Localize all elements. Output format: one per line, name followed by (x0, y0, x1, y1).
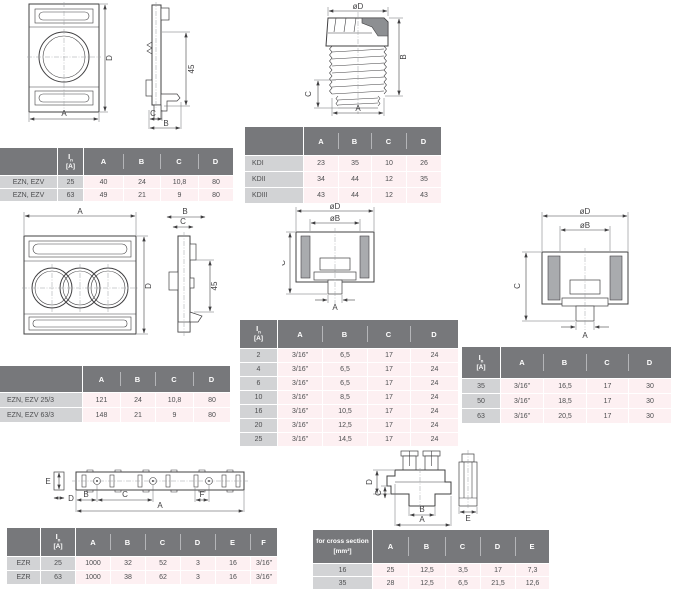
value-cell: 3,5 (445, 563, 480, 576)
value-cell: 6,5 (322, 376, 367, 390)
value-cell: 148 (82, 407, 120, 422)
value-cell: 9 (155, 407, 193, 422)
dim-label-a: A (419, 515, 425, 524)
dim-label-c: C (122, 490, 128, 499)
row-label: KDIII (245, 187, 303, 203)
column-header-b: B (120, 366, 155, 392)
value-cell: 44 (338, 171, 371, 187)
value-cell: 44 (338, 187, 371, 203)
value-cell: 3/16” (250, 570, 277, 584)
column-header-d: D (628, 347, 671, 378)
value-cell: 35 (406, 171, 441, 187)
catalog-page: A D 45 C B (0, 0, 674, 600)
column-header-b: B (338, 127, 371, 155)
value-cell: 12,5 (322, 418, 367, 432)
row-label: 16 (313, 563, 372, 576)
value-cell: 17 (367, 376, 410, 390)
value-cell: 17 (586, 378, 628, 393)
column-header-c: C (371, 127, 406, 155)
value-cell: 3 (180, 570, 215, 584)
row-label: KDII (245, 171, 303, 187)
cup-body (542, 248, 628, 330)
dim-label-od: øD (580, 207, 591, 216)
insert-small-drawing: øD øB C A (282, 202, 388, 314)
column-header-f: F (250, 528, 277, 556)
value-cell: 3/16” (500, 378, 543, 393)
value-cell: 32 (110, 556, 145, 570)
row-label: EZR (7, 556, 40, 570)
dim-label-b: B (419, 505, 424, 514)
in-value: 25 (57, 175, 83, 188)
value-cell: 12,5 (408, 576, 445, 589)
column-header-b: B (408, 530, 445, 563)
value-cell: 3/16” (277, 390, 322, 404)
column-header-a: A (277, 320, 322, 348)
front-view (27, 2, 101, 114)
value-cell: 24 (410, 432, 458, 446)
value-cell: 3/16” (500, 408, 543, 423)
rail-front-view (72, 470, 248, 492)
insert-large-drawing: øD øB C A (498, 196, 654, 342)
value-cell: 7,3 (515, 563, 549, 576)
value-cell: 80 (193, 392, 230, 407)
column-header-d: D (406, 127, 441, 155)
in-value: 10 (240, 390, 277, 404)
value-cell: 1000 (75, 556, 110, 570)
column-header-b: B (322, 320, 367, 348)
value-cell: 17 (367, 404, 410, 418)
column-header-c: C (367, 320, 410, 348)
dim-label-d: D (365, 479, 374, 485)
column-header-in: In [A] (240, 320, 277, 348)
dim-label-e: E (465, 514, 470, 523)
dim-label-c: C (374, 490, 383, 496)
rail-end-view: E D (45, 472, 74, 503)
value-cell: 80 (198, 175, 233, 188)
value-cell: 10 (371, 155, 406, 171)
value-cell: 24 (410, 362, 458, 376)
in-value: 2 (240, 348, 277, 362)
value-cell: 3/16” (500, 393, 543, 408)
dim-label-c: C (304, 91, 313, 97)
value-cell: 3/16” (277, 404, 322, 418)
in-unit: [A] (476, 364, 485, 371)
value-cell: 30 (628, 393, 671, 408)
value-cell: 24 (410, 348, 458, 362)
value-cell: 80 (198, 188, 233, 201)
row-label: EZN, EZV 63/3 (0, 407, 82, 422)
ezn3-side-view-drawing: B C 45 (156, 208, 220, 340)
dim-label-a: A (582, 331, 588, 340)
value-cell: 30 (628, 378, 671, 393)
side-view (146, 2, 180, 119)
cup-body (296, 228, 374, 304)
dim-label-d: D (68, 494, 74, 503)
ezn-side-view-drawing: 45 C B (136, 2, 208, 130)
dim-label-a: A (332, 303, 338, 312)
value-cell: 17 (586, 393, 628, 408)
value-cell: 49 (83, 188, 123, 201)
value-cell: 43 (406, 187, 441, 203)
value-cell: 24 (410, 404, 458, 418)
dim-label-od: øD (330, 202, 341, 211)
value-cell: 8,5 (322, 390, 367, 404)
dim-label-ob: øB (580, 221, 590, 230)
value-cell: 3/16” (277, 376, 322, 390)
dim-label-b: B (83, 490, 88, 499)
column-header-a: A (83, 148, 123, 175)
column-header-d: D (410, 320, 458, 348)
column-header-d: D (480, 530, 515, 563)
value-cell: 16,5 (543, 378, 586, 393)
dim-label-a: A (157, 501, 163, 510)
dimensions: A D (29, 4, 114, 122)
ezr-rail-drawing: E D B C (28, 456, 264, 518)
header-blank (0, 148, 57, 175)
dim-label-a: A (77, 208, 83, 216)
value-cell: 40 (83, 175, 123, 188)
value-cell: 24 (410, 390, 458, 404)
in-symbol: In (479, 354, 484, 364)
dim-label-d: D (105, 55, 114, 61)
value-cell: 16 (215, 556, 250, 570)
value-cell: 17 (367, 362, 410, 376)
header-blank (245, 127, 303, 155)
value-cell: 21,5 (480, 576, 515, 589)
value-cell: 12 (371, 171, 406, 187)
dim-label-b: B (399, 54, 408, 59)
in-unit: [A] (53, 543, 62, 550)
value-cell: 3/16” (250, 556, 277, 570)
value-cell: 6,5 (322, 348, 367, 362)
in-value: 25 (240, 432, 277, 446)
in-value: 50 (462, 393, 500, 408)
column-header-a: A (75, 528, 110, 556)
value-cell: 6,5 (445, 576, 480, 589)
value-cell: 17 (367, 418, 410, 432)
value-cell: 30 (628, 408, 671, 423)
in-value: 16 (240, 404, 277, 418)
table-inserts-small: In [A] A B C D 2 3/16” 6,5 17 24 4 3/16”… (240, 320, 458, 446)
value-cell: 20,5 (543, 408, 586, 423)
value-cell: 12,6 (515, 576, 549, 589)
value-cell: 3/16” (277, 362, 322, 376)
side-view (169, 232, 202, 336)
value-cell: 24 (410, 418, 458, 432)
in-unit: [A] (254, 335, 263, 342)
header-blank (7, 528, 40, 556)
value-cell: 24 (410, 376, 458, 390)
value-cell: 121 (82, 392, 120, 407)
value-cell: 3/16” (277, 348, 322, 362)
value-cell: 21 (120, 407, 155, 422)
table-ezr: In [A] A B C D E F EZR 25 1000 32 52 3 1… (7, 528, 277, 584)
value-cell: 3/16” (277, 432, 322, 446)
dim-label-f: F (200, 490, 205, 499)
value-cell: 3/16” (277, 418, 322, 432)
column-header-c: C (155, 366, 193, 392)
value-cell: 26 (406, 155, 441, 171)
table-inserts-large: In [A] A B C D 35 3/16” 16,5 17 30 50 3/… (462, 347, 671, 423)
in-value: 35 (462, 378, 500, 393)
in-value: 25 (40, 556, 75, 570)
ezn3-front-view-drawing: A D (18, 208, 152, 340)
column-header-d: D (198, 148, 233, 175)
value-cell: 43 (303, 187, 338, 203)
column-header-in: In [A] (462, 347, 500, 378)
value-cell: 28 (372, 576, 408, 589)
in-symbol: In (68, 153, 73, 163)
column-header-in: In [A] (57, 148, 83, 175)
row-label: EZR (7, 570, 40, 584)
column-header-b: B (123, 148, 160, 175)
column-header-cross-section: for cross section [mm²] (313, 530, 372, 563)
dim-label-c: C (282, 260, 287, 266)
value-cell: 10,5 (322, 404, 367, 418)
value-cell: 3 (180, 556, 215, 570)
table-cross-section: for cross section [mm²] A B C D E 16 25 … (313, 530, 549, 589)
ezn-front-view-drawing: A D (26, 2, 114, 126)
dim-label-od: øD (353, 2, 364, 11)
row-label: EZN, EZV 25/3 (0, 392, 82, 407)
dim-label-45: 45 (187, 64, 196, 73)
value-cell: 24 (123, 175, 160, 188)
dim-label-b: B (182, 208, 187, 216)
column-header-a: A (82, 366, 120, 392)
value-cell: 21 (123, 188, 160, 201)
dim-label-a: A (355, 104, 361, 113)
value-cell: 12 (371, 187, 406, 203)
dim-label-45: 45 (210, 281, 219, 290)
column-header-a: A (372, 530, 408, 563)
column-header-a: A (500, 347, 543, 378)
column-header-b: B (543, 347, 586, 378)
dim-label-e: E (45, 477, 50, 486)
dimensions: B C 45 (167, 208, 219, 312)
value-cell: 17 (367, 348, 410, 362)
column-header-in: In [A] (40, 528, 75, 556)
row-label: KDI (245, 155, 303, 171)
column-header-a: A (303, 127, 338, 155)
value-cell: 25 (372, 563, 408, 576)
dim-label-a: A (61, 109, 67, 118)
row-label: 35 (313, 576, 372, 589)
in-symbol: In (256, 325, 261, 335)
table-ezn-ezv-3pole: A B C D EZN, EZV 25/3 121 24 10,8 80 EZN… (0, 366, 230, 422)
value-cell: 16 (215, 570, 250, 584)
terminal-front-view (387, 451, 451, 510)
value-cell: 10,8 (160, 175, 198, 188)
cross-section-line2: [mm²] (333, 547, 351, 556)
value-cell: 12,5 (408, 563, 445, 576)
column-header-b: B (110, 528, 145, 556)
column-header-c: C (145, 528, 180, 556)
in-value: 63 (462, 408, 500, 423)
kd-gland-drawing: øD C B A (296, 2, 430, 118)
value-cell: 6,5 (322, 362, 367, 376)
dimensions: A D (24, 208, 152, 334)
dim-label-c: C (513, 283, 522, 289)
column-header-d: D (180, 528, 215, 556)
dim-label-c: C (180, 217, 186, 226)
value-cell: 23 (303, 155, 338, 171)
row-label: EZN, EZV (0, 188, 57, 201)
column-header-c: C (160, 148, 198, 175)
value-cell: 52 (145, 556, 180, 570)
front-view (22, 236, 138, 334)
dim-label-d: D (144, 283, 152, 289)
dimensions: B C F A (76, 485, 244, 512)
cross-section-line1: for cross section (316, 537, 368, 546)
value-cell: 17 (480, 563, 515, 576)
dim-label-ob: øB (330, 214, 340, 223)
terminal-side-view: E (459, 450, 477, 523)
column-header-c: C (445, 530, 480, 563)
value-cell: 38 (110, 570, 145, 584)
value-cell: 17 (367, 390, 410, 404)
column-header-e: E (515, 530, 549, 563)
in-value: 63 (57, 188, 83, 201)
column-header-d: D (193, 366, 230, 392)
terminal-drawing: D C B A E (363, 448, 487, 534)
value-cell: 62 (145, 570, 180, 584)
value-cell: 18,5 (543, 393, 586, 408)
value-cell: 35 (338, 155, 371, 171)
dim-label-c: C (150, 109, 156, 118)
table-kd: A B C D KDI 23 35 10 26 KDII 34 44 12 35… (245, 127, 441, 203)
value-cell: 34 (303, 171, 338, 187)
value-cell: 17 (586, 408, 628, 423)
value-cell: 80 (193, 407, 230, 422)
in-symbol: In (56, 533, 61, 543)
value-cell: 14,5 (322, 432, 367, 446)
value-cell: 17 (367, 432, 410, 446)
value-cell: 9 (160, 188, 198, 201)
column-header-c: C (586, 347, 628, 378)
column-header-e: E (215, 528, 250, 556)
value-cell: 1000 (75, 570, 110, 584)
value-cell: 24 (120, 392, 155, 407)
in-value: 63 (40, 570, 75, 584)
dim-label-b: B (163, 119, 168, 128)
gland-body (326, 12, 388, 114)
in-value: 4 (240, 362, 277, 376)
in-unit: [A] (66, 163, 75, 170)
dimensions: D C B A (365, 470, 451, 526)
header-blank (0, 366, 82, 392)
in-value: 6 (240, 376, 277, 390)
row-label: EZN, EZV (0, 175, 57, 188)
in-value: 20 (240, 418, 277, 432)
value-cell: 10,8 (155, 392, 193, 407)
table-ezn-ezv: In [A] A B C D EZN, EZV 25 40 24 10,8 80… (0, 148, 233, 201)
